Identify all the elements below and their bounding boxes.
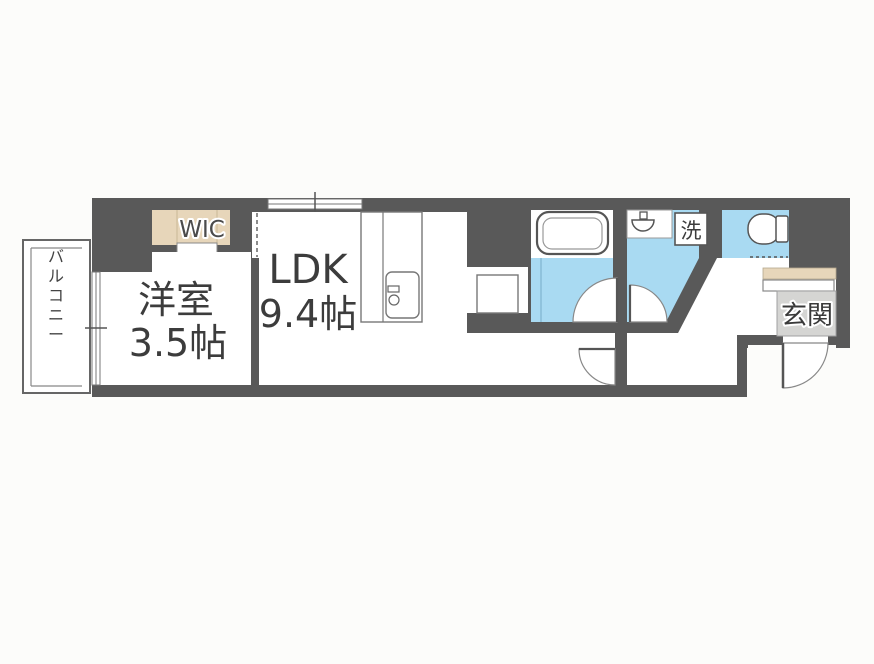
hallway-floor [627,333,737,385]
toilet-room [722,210,789,258]
wic-label: WIC [179,217,225,243]
kitchen [361,212,422,322]
kitchen-sink-icon [386,272,419,318]
bedroom-label-name: 洋室 [138,278,214,322]
ldk-label-name: LDK [268,247,349,293]
shoe-cabinet [763,268,836,279]
balcony-label: バルコニー [48,247,64,344]
refrigerator-space [477,275,518,313]
floor-plan-drawing: 洗 玄関 [0,0,874,664]
entrance-label: 玄関 [781,301,833,331]
bedroom-label-size: 3.5帖 [129,321,227,365]
toilet-icon [748,214,788,244]
entrance-step [763,280,834,291]
laundry-label: 洗 [681,219,702,243]
ldk-label-size: 9.4帖 [259,292,357,336]
floor-plan-page: 洗 玄関 [0,0,874,664]
